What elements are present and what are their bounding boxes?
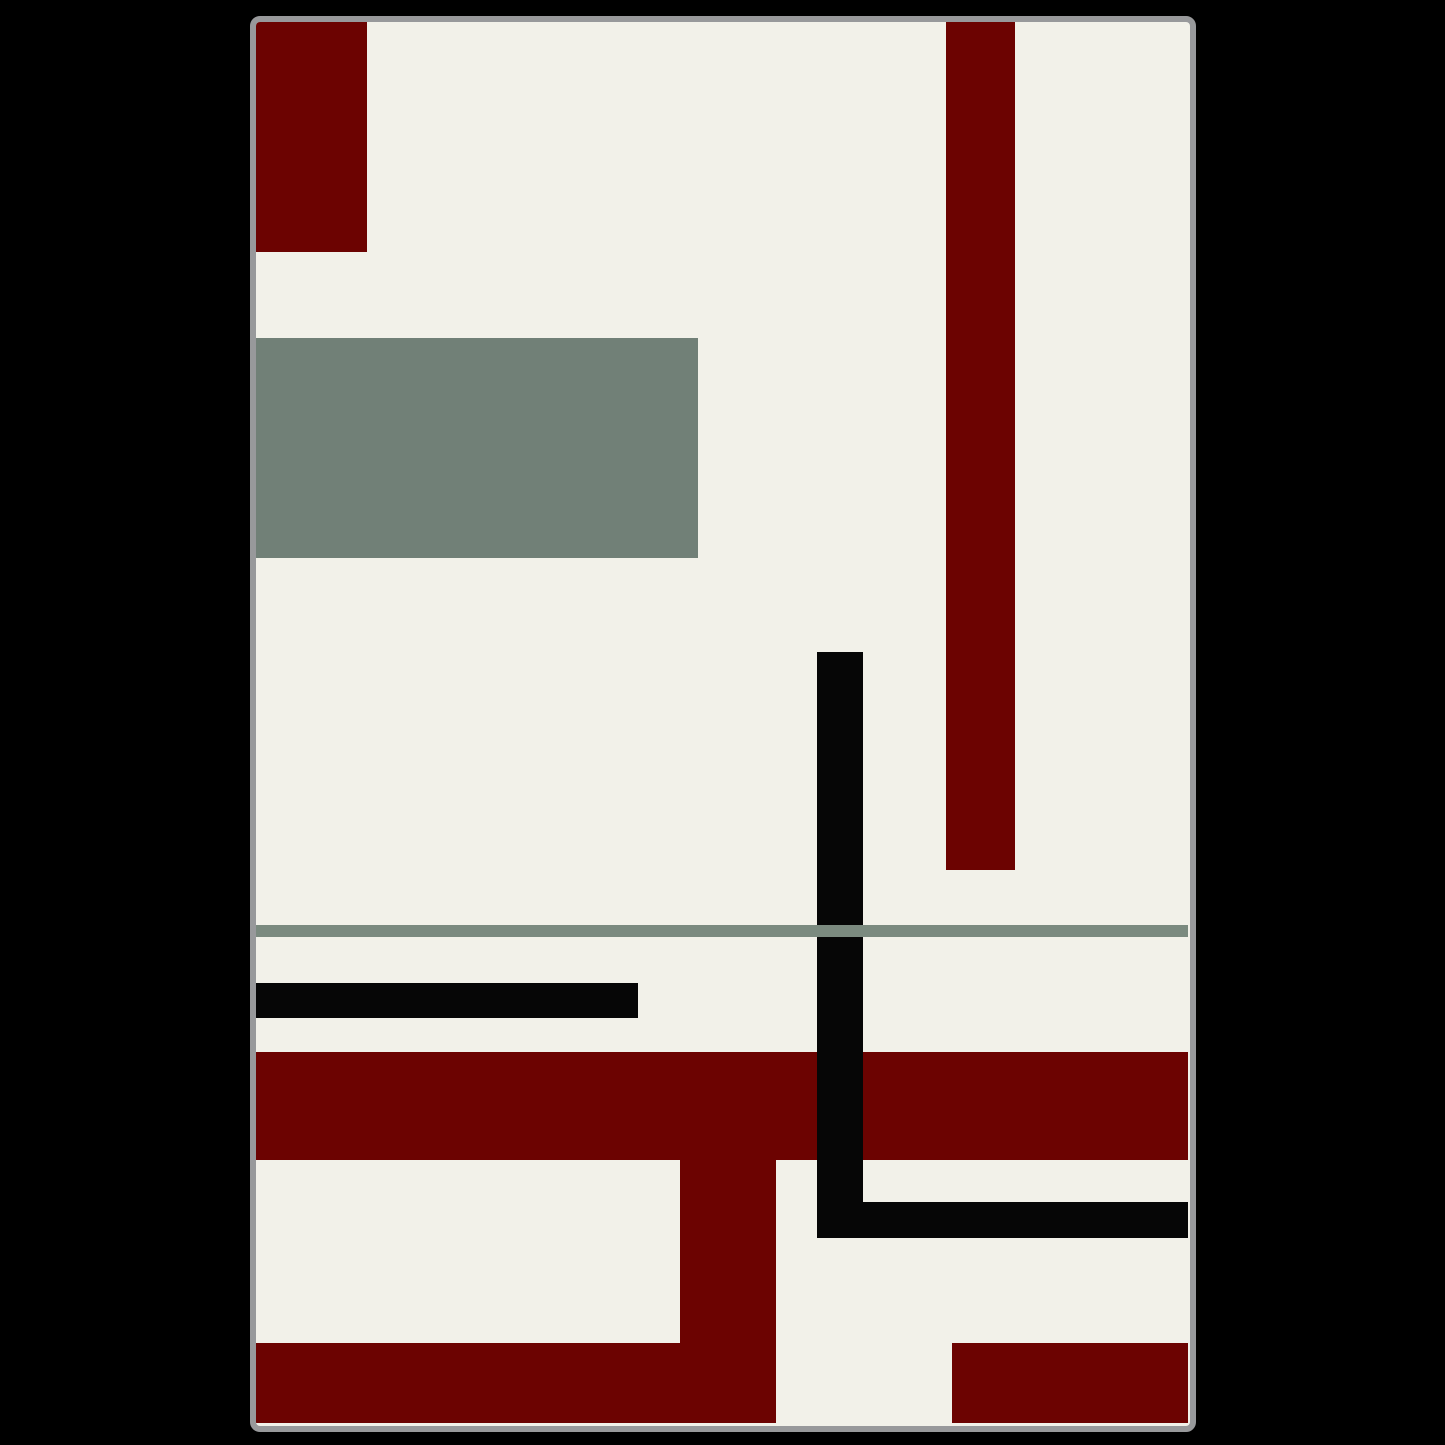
green-horizontal-line bbox=[256, 925, 1188, 937]
artwork-frame bbox=[250, 16, 1196, 1432]
black-horizontal-bar-bottom bbox=[817, 1202, 1188, 1238]
red-horizontal-band bbox=[256, 1052, 1188, 1160]
product-image-background bbox=[0, 0, 1445, 1445]
red-bottom-left-block bbox=[256, 1343, 776, 1423]
green-rectangle bbox=[256, 338, 698, 558]
black-horizontal-bar-middle bbox=[256, 983, 638, 1018]
red-vertical-bar-top-right bbox=[946, 22, 1015, 870]
black-vertical-bar bbox=[817, 652, 863, 1238]
artwork-canvas bbox=[256, 22, 1190, 1426]
red-top-left-rectangle bbox=[256, 22, 367, 252]
red-bottom-right-block bbox=[952, 1343, 1188, 1423]
